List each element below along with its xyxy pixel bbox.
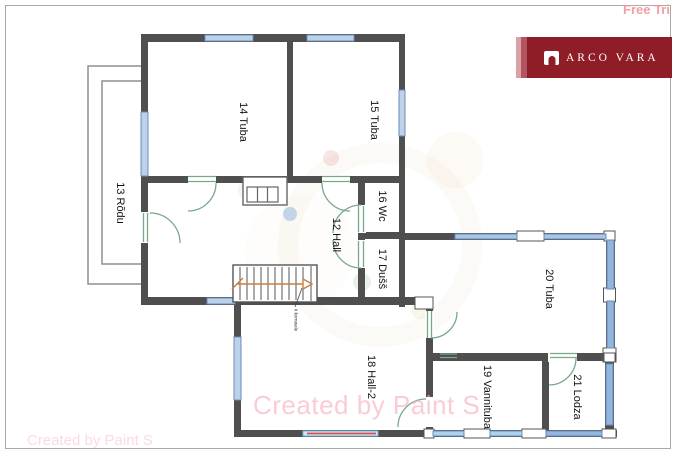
window [490, 431, 522, 436]
room-label-14-tuba: 14 Tuba [237, 102, 249, 143]
watermark-bottom-left: Created by Paint S [27, 432, 153, 449]
window [607, 301, 614, 348]
room-label-19-vannituba: 19 Vannituba [481, 365, 493, 430]
floor-plan-svg: II korrusele 12 Hall 13 Rõdu 14 Tuba 15 … [0, 0, 676, 453]
window [607, 240, 614, 289]
window [399, 90, 405, 136]
door-arc [188, 183, 216, 211]
room-label-17-duss: 17 Dušš [376, 249, 388, 290]
window [455, 234, 517, 239]
stairs-note: II korrusele [294, 309, 299, 332]
window [207, 298, 235, 304]
room-label-21-lodza: 21 Lodza [571, 374, 583, 420]
window [544, 234, 606, 239]
balcony-outline [88, 66, 141, 284]
window [234, 337, 241, 400]
room-label-13-rodu: 13 Rõdu [114, 182, 126, 224]
room-label-15-tuba: 15 Tuba [368, 100, 380, 141]
window [433, 431, 464, 436]
room-label-20-tuba: 20 Tuba [543, 269, 555, 310]
window [141, 112, 148, 176]
room-label-16-wc: 16 Wc [376, 190, 388, 222]
window [205, 35, 253, 41]
window [606, 364, 613, 425]
door-arc [150, 213, 180, 243]
closet [243, 177, 287, 205]
window [546, 431, 602, 436]
watermark-center: Created by Paint S [253, 390, 480, 421]
room-label-12-hall: 12 Hall [330, 218, 342, 252]
window [307, 35, 354, 41]
